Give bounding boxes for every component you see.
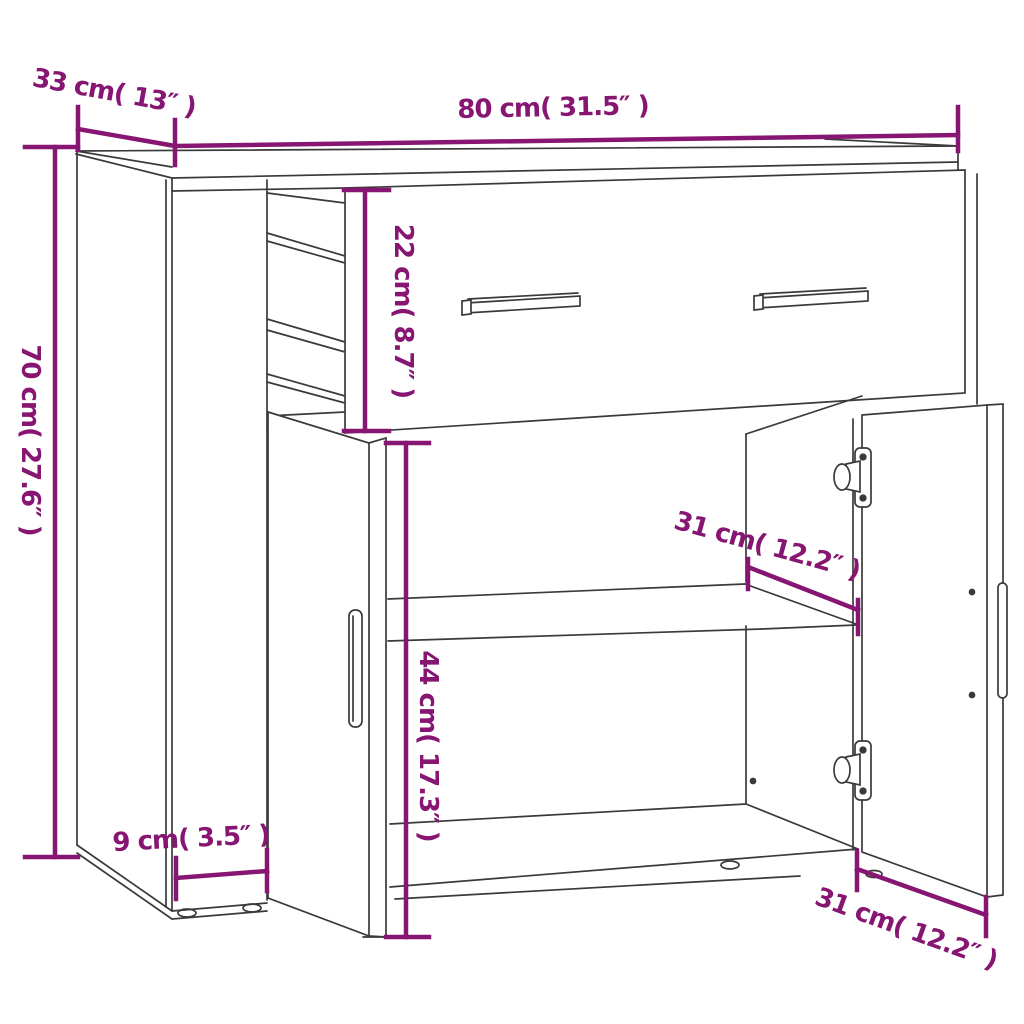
cabinet-outline bbox=[76, 139, 1007, 937]
left-side-panel bbox=[77, 151, 261, 919]
width-dimension-line bbox=[175, 107, 958, 151]
drawer-slides bbox=[267, 193, 345, 428]
door-height-dimension-line bbox=[386, 443, 429, 937]
cabinet-interior bbox=[388, 396, 882, 899]
dimension-diagram: 80 cm( 31.5″ ) 33 cm( 13″ ) 70 cm( 27.6″… bbox=[0, 0, 1024, 1024]
shelf-depth-dimension-line bbox=[748, 559, 858, 634]
right-door-handle bbox=[998, 583, 1007, 698]
middle-shelf bbox=[388, 584, 856, 641]
drawer-front bbox=[345, 170, 965, 433]
side-width-dimension-line bbox=[176, 850, 267, 899]
front-stile bbox=[172, 180, 267, 919]
shelf-pin-hole bbox=[751, 779, 756, 784]
right-foot bbox=[721, 861, 739, 869]
right-door bbox=[834, 404, 1007, 897]
door-pin-hole-bottom bbox=[970, 693, 975, 698]
height-dimension-line bbox=[25, 147, 78, 857]
sideboard-line-art bbox=[0, 0, 1024, 1024]
door-pin-hole-top bbox=[970, 590, 975, 595]
depth-dimension-line bbox=[78, 107, 175, 165]
left-door bbox=[268, 412, 387, 937]
left-door-handle bbox=[349, 610, 362, 727]
cabinet-floor bbox=[390, 804, 858, 899]
